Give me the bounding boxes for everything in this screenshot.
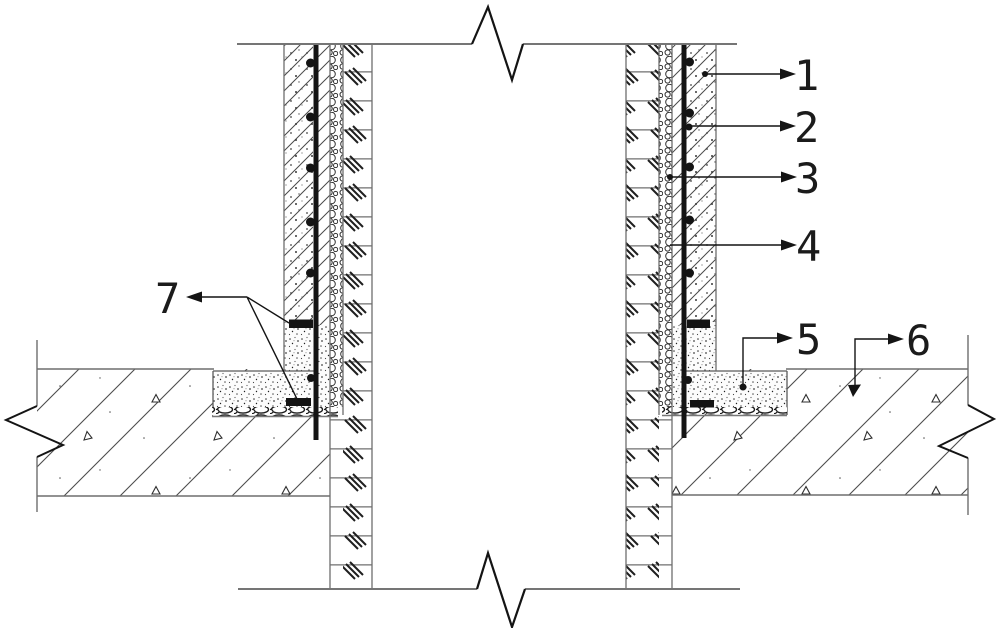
left-wall-masonry-lower — [330, 415, 343, 590]
right-wall-masonry-hash — [626, 44, 659, 590]
right-wall-adhesive-layer — [659, 44, 672, 407]
left-wall — [212, 44, 372, 590]
section-detail-drawing: 1 2 3 4 5 6 — [0, 0, 1000, 628]
left-wall-insulation-board — [319, 44, 331, 325]
callout-label-2: 2 — [794, 103, 819, 152]
callout-5-arrow — [777, 333, 793, 344]
right-wall-grout-strip — [672, 325, 682, 407]
callout-7-arrow — [186, 292, 202, 303]
callouts: 1 2 3 4 5 6 — [155, 51, 931, 401]
left-wall-grout-column — [284, 322, 313, 372]
left-wall-reinforcing-mesh-line — [314, 44, 319, 440]
right-pebble-bed — [662, 407, 787, 416]
right-wall-masonry-lower — [659, 415, 672, 590]
right-wall-grout-column — [687, 322, 717, 371]
top-break-symbol — [472, 7, 523, 80]
callout-label-7: 7 — [155, 274, 180, 323]
callout-4-arrow — [781, 240, 797, 251]
left-wall-masonry-hash — [343, 44, 372, 590]
callout-label-1: 1 — [794, 51, 819, 100]
callout-6-arrow — [888, 334, 904, 345]
callout-label-6: 6 — [906, 316, 931, 365]
right-upper-anchor-bar — [687, 320, 710, 329]
left-wall-grout-strip — [319, 325, 331, 407]
right-lower-anchor-bar — [690, 400, 714, 408]
bottom-break-symbol — [477, 553, 525, 627]
left-wall-render-dots — [284, 44, 313, 322]
callout-label-4: 4 — [796, 222, 821, 271]
callout-label-3: 3 — [795, 154, 820, 203]
left-lower-anchor-bar — [286, 398, 311, 406]
right-wall-insulation-board — [672, 44, 682, 325]
callout-label-5: 5 — [796, 315, 821, 364]
drawing-canvas: 1 2 3 4 5 6 — [0, 0, 1000, 628]
callout-1: 1 — [702, 51, 819, 100]
right-wall-render-dots — [687, 44, 717, 322]
left-upper-anchor-bar — [289, 320, 313, 329]
left-pebble-bed — [212, 407, 338, 416]
right-floor-slab — [672, 335, 994, 515]
left-wall-adhesive-layer — [330, 44, 343, 407]
